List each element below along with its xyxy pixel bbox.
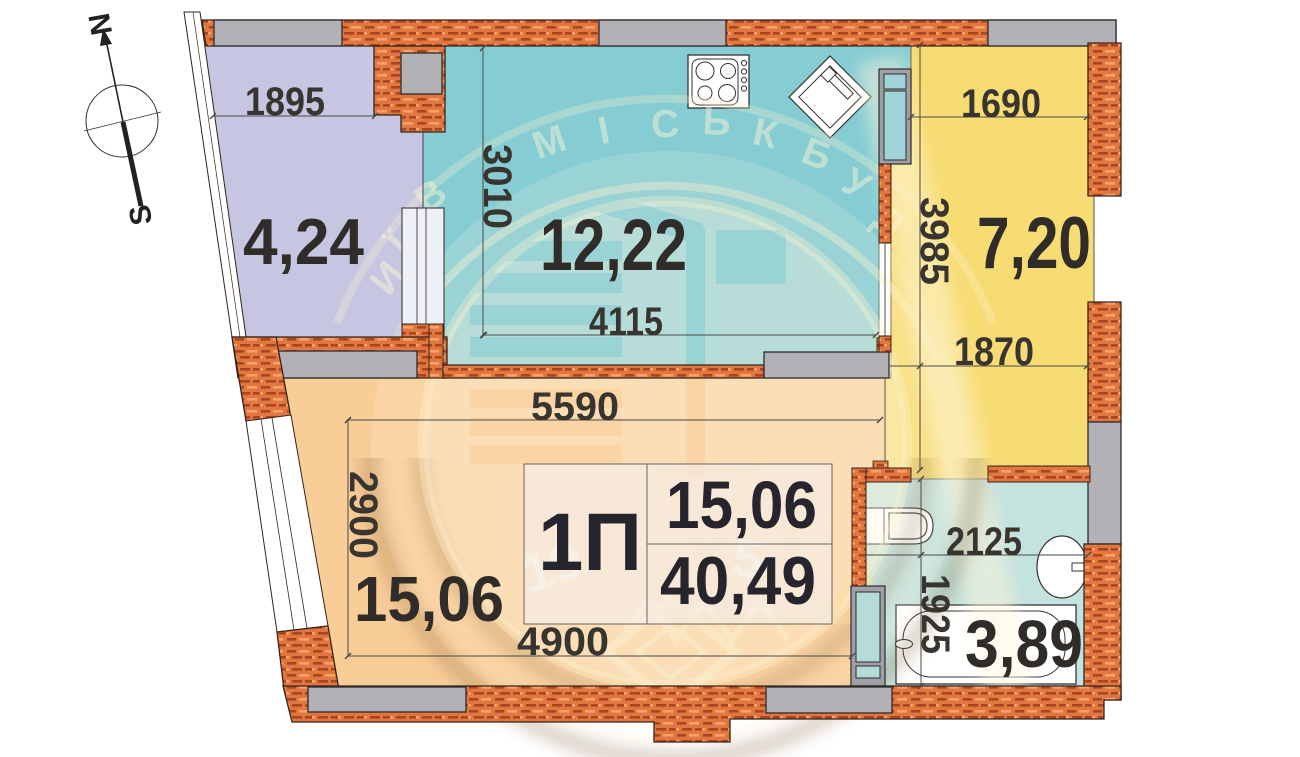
svg-text:Ь: Ь	[702, 100, 732, 144]
svg-text:1690: 1690	[961, 82, 1041, 126]
svg-text:1895: 1895	[245, 80, 325, 124]
svg-text:15,06: 15,06	[354, 563, 504, 635]
svg-text:1870: 1870	[954, 330, 1034, 374]
svg-text:4115: 4115	[589, 300, 663, 344]
svg-text:2900: 2900	[341, 471, 385, 559]
svg-text:4,24: 4,24	[243, 205, 364, 278]
svg-text:1925: 1925	[913, 574, 957, 654]
svg-text:5590: 5590	[531, 385, 619, 429]
svg-text:3010: 3010	[475, 144, 519, 229]
svg-text:12,22: 12,22	[540, 205, 687, 286]
svg-text:4900: 4900	[517, 620, 609, 664]
svg-text:3985: 3985	[912, 197, 956, 285]
svg-text:1П: 1П	[538, 497, 642, 588]
svg-text:7,20: 7,20	[977, 203, 1091, 284]
svg-text:40,49: 40,49	[660, 543, 816, 619]
svg-text:3,89: 3,89	[965, 607, 1083, 682]
svg-text:15,06: 15,06	[666, 468, 817, 543]
svg-text:С: С	[650, 102, 681, 147]
svg-text:2125: 2125	[946, 520, 1022, 564]
